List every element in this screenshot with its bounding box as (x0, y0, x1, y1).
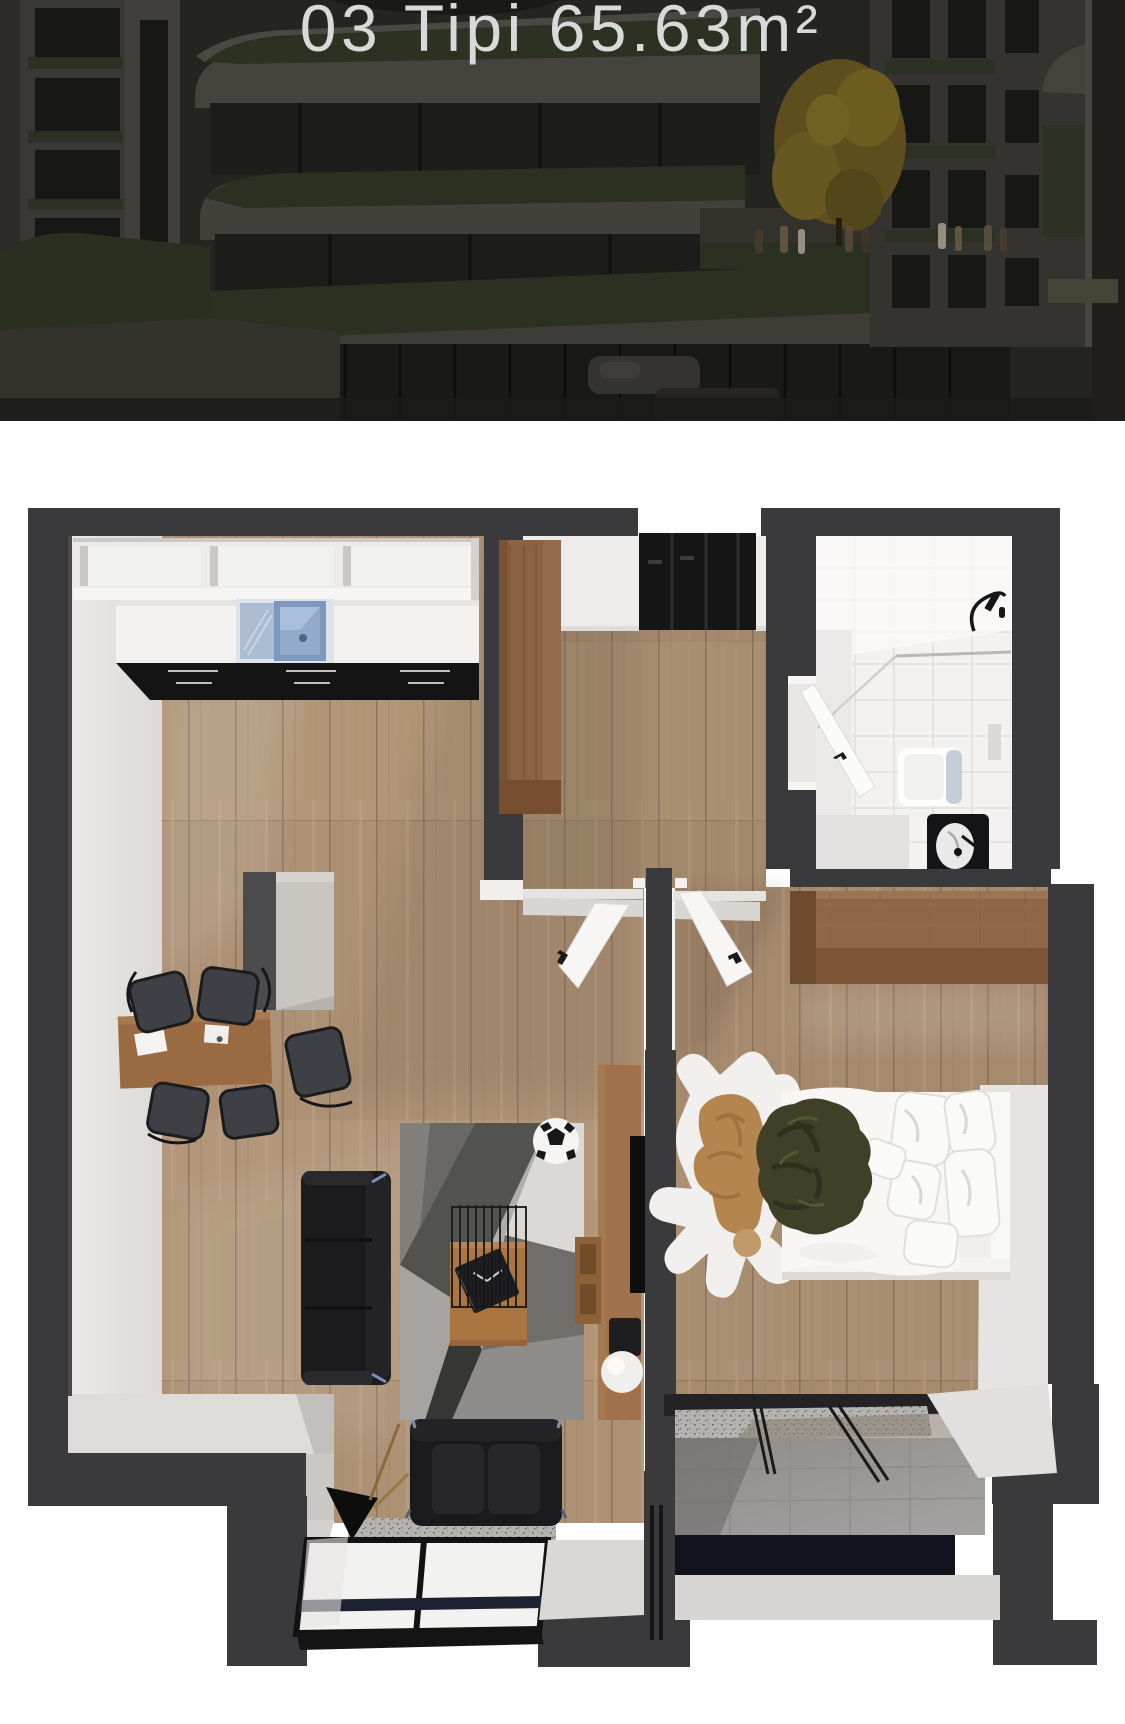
svg-text:03 Tipi 65.63m²: 03 Tipi 65.63m² (300, 0, 822, 65)
